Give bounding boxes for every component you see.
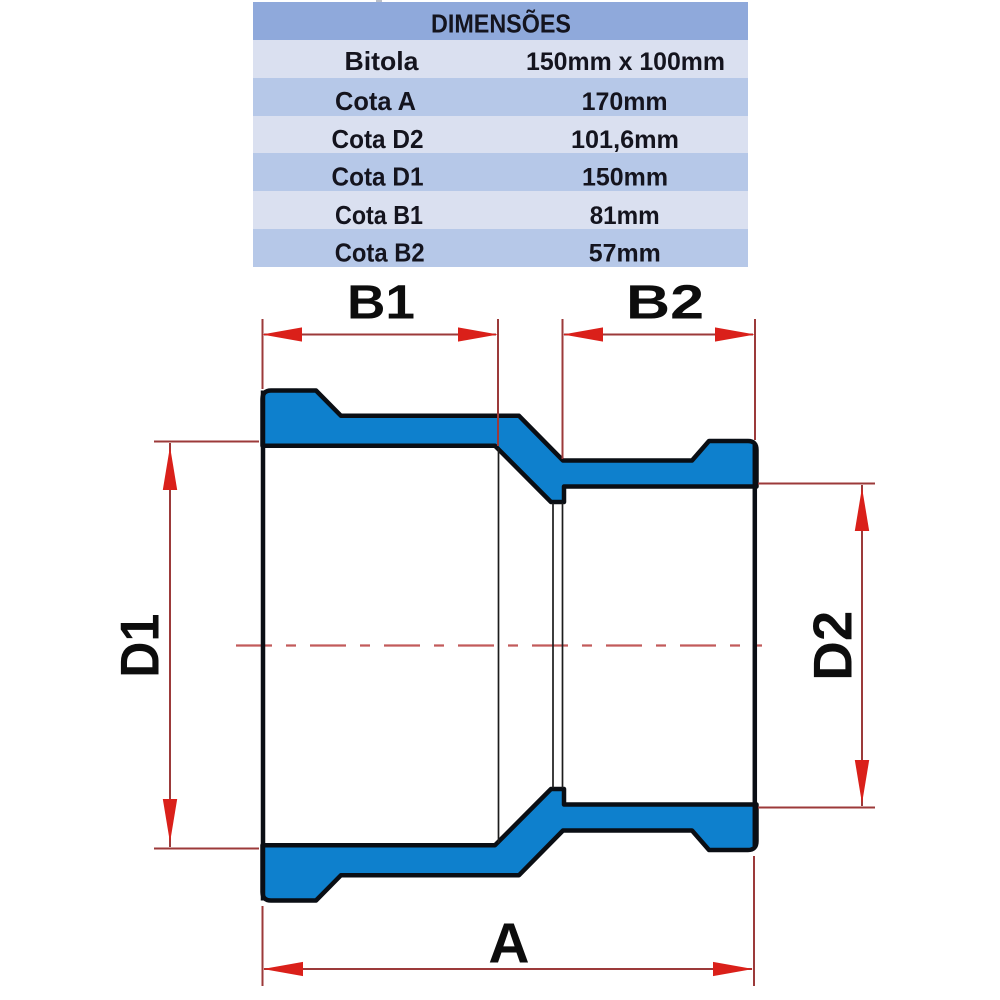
svg-text:150mm: 150mm (582, 164, 668, 192)
svg-text:150mm x 100mm: 150mm x 100mm (526, 48, 725, 76)
svg-text:D1: D1 (109, 614, 171, 678)
svg-text:Bitola: Bitola (345, 46, 420, 76)
svg-text:B1: B1 (347, 277, 415, 330)
svg-text:Cota B2: Cota B2 (335, 238, 425, 268)
svg-text:101,6mm: 101,6mm (571, 126, 679, 154)
svg-text:57mm: 57mm (589, 240, 661, 268)
svg-text:Cota D1: Cota D1 (332, 162, 424, 192)
svg-text:D2: D2 (802, 611, 864, 681)
svg-text:A: A (488, 912, 529, 976)
svg-text:DIMENSÕES: DIMENSÕES (431, 9, 571, 39)
svg-text:170mm: 170mm (582, 88, 668, 116)
svg-text:B2: B2 (626, 277, 704, 330)
svg-text:Cota D2: Cota D2 (332, 124, 424, 154)
svg-text:Cota B1: Cota B1 (335, 200, 423, 230)
svg-text:81mm: 81mm (590, 202, 660, 230)
svg-text:Cota A: Cota A (335, 86, 416, 116)
